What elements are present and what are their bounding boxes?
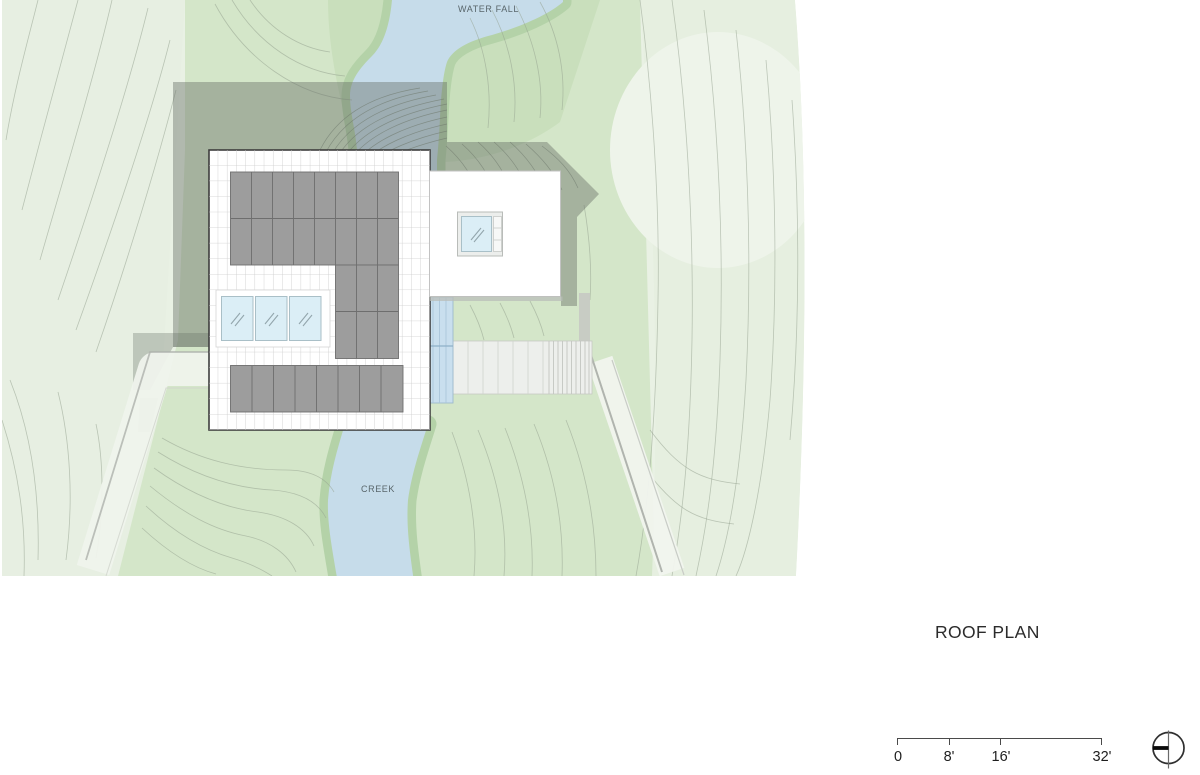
extension-skylight — [458, 212, 503, 256]
scale-tick — [949, 738, 950, 745]
scale-tick — [1000, 738, 1001, 745]
scale-label: 16' — [992, 749, 1011, 765]
roof-extension — [430, 171, 563, 301]
scale-label: 32' — [1093, 749, 1112, 765]
drawing-title: ROOF PLAN — [935, 622, 1040, 643]
skylights — [216, 290, 330, 347]
scale-label: 8' — [944, 749, 955, 765]
building-roof — [209, 150, 430, 430]
site-plan-map — [0, 0, 810, 578]
water-fall-label: WATER FALL — [458, 4, 519, 14]
north-arrow-icon — [1148, 726, 1190, 772]
scale-bar: 0 8' 16' 32' — [897, 738, 1102, 768]
scale-tick — [897, 738, 898, 745]
scale-tick — [1101, 738, 1102, 745]
creek-label: CREEK — [361, 484, 395, 494]
roof-plan-sheet: WATER FALL CREEK ROOF PLAN 0 8' 16' 32' — [0, 0, 1200, 775]
scale-label: 0 — [894, 749, 902, 765]
